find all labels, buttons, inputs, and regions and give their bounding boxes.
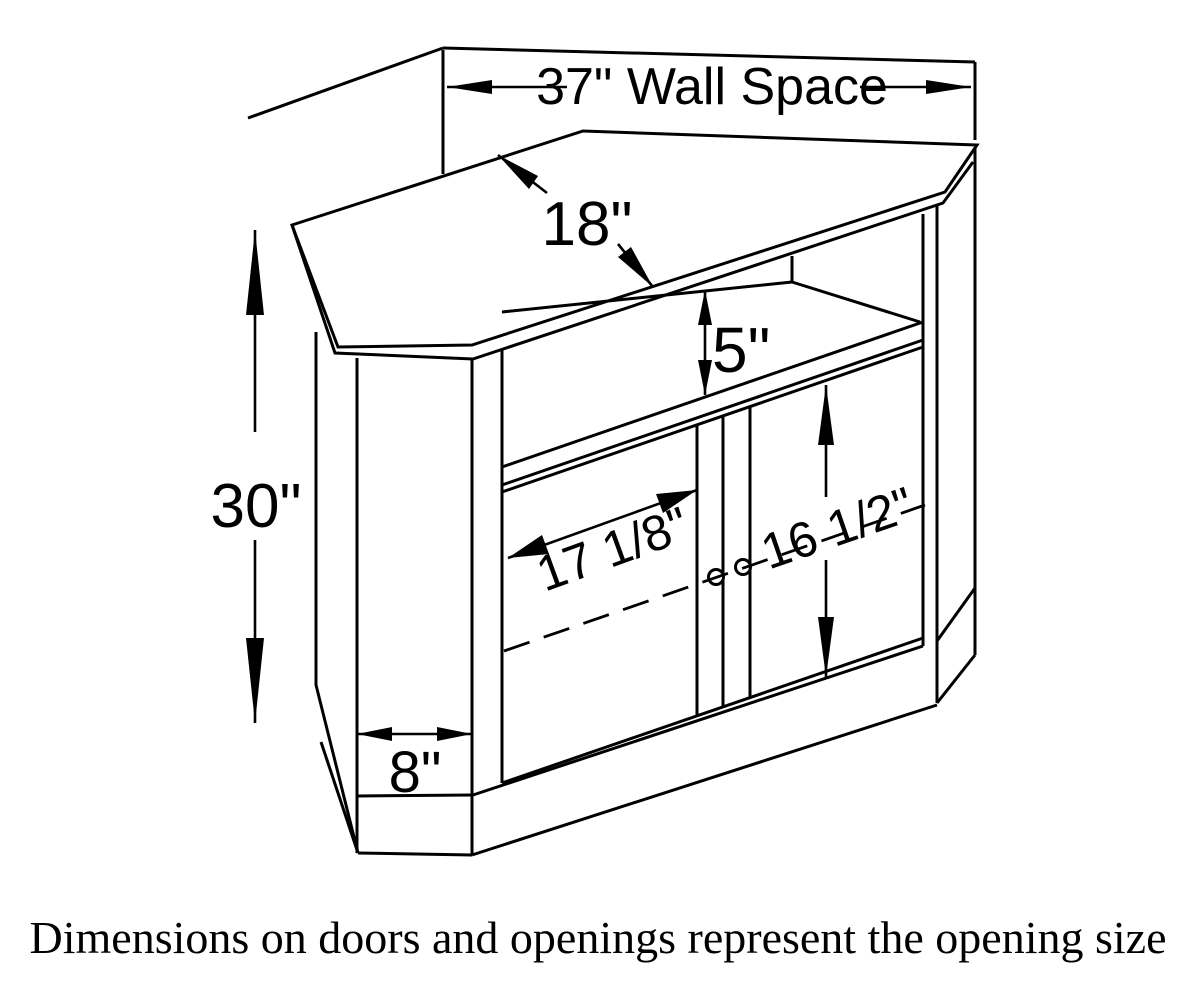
caption: Dimensions on doors and openings represe…: [30, 912, 1167, 963]
top-depth-dimension-label: 18": [542, 190, 633, 259]
side-panel-dimension-label: 8": [389, 740, 442, 805]
left-panel-plinth-bottom: [358, 853, 472, 855]
corner-tv-stand-diagram: 37" Wall Space: [0, 0, 1200, 1000]
top-depth-arrow-upper-icon: [498, 155, 538, 189]
wall-space-dimension: 37" Wall Space: [447, 58, 971, 116]
wall-space-arrow-right-icon: [926, 80, 971, 94]
top-depth-dimension: 18": [498, 155, 653, 287]
height-arrow-up-icon: [246, 230, 264, 315]
shelf-opening-dimension-label: 5": [712, 314, 770, 386]
wall-space-dimension-label: 37" Wall Space: [536, 58, 888, 116]
door-height-dimension: 16 1/2": [754, 385, 920, 677]
door-bottom-edge: [502, 638, 923, 783]
height-arrow-down-icon: [246, 638, 264, 723]
compartment-back-left-edge: [502, 282, 792, 312]
shelf-opening-dimension: 5": [698, 290, 770, 395]
right-panel-plinth-top: [937, 588, 975, 641]
side-panel-arrow-right-icon: [437, 727, 472, 741]
door-height-arrow-up-icon: [818, 385, 834, 445]
front-plinth-bottom-edge: [472, 705, 937, 855]
shelf-opening-arrow-up-icon: [698, 290, 712, 325]
door-width-dimension: 17 1/8": [508, 490, 697, 602]
left-panel-silhouette: [316, 332, 358, 853]
overall-height-dimension-label: 30": [211, 472, 302, 541]
top-surface: [292, 131, 977, 347]
left-panel-base-bevel: [321, 742, 358, 853]
side-panel-dimension: 8": [357, 727, 472, 805]
technical-drawing-page: 37" Wall Space: [0, 0, 1200, 1000]
wall-corner-line: [248, 48, 443, 118]
wall-space-arrow-left-icon: [447, 80, 492, 94]
compartment-back-right-edge: [792, 282, 920, 322]
side-panel-arrow-left-icon: [357, 727, 392, 741]
right-panel-bottom-edge: [937, 655, 975, 703]
door-height-dimension-label: 16 1/2": [754, 476, 920, 580]
shelf-opening-arrow-down-icon: [698, 360, 712, 395]
overall-height-dimension: 30": [211, 230, 302, 723]
cabinet-top: [292, 131, 977, 359]
door-width-dimension-label: 17 1/8": [529, 496, 695, 602]
